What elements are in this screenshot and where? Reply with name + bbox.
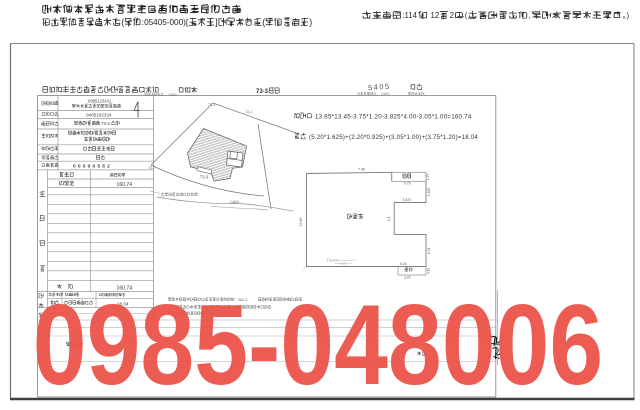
svg-text:1/600: 1/600 [168,93,177,97]
svg-text:(: ( [465,11,468,20]
svg-text::114: :114 [402,11,417,20]
svg-text:1.05: 1.05 [340,262,346,266]
svg-text:1.4: 1.4 [387,217,391,222]
svg-text:13.60: 13.60 [299,218,303,227]
svg-text:12: 12 [431,11,440,20]
svg-text:1.625: 1.625 [427,188,431,197]
svg-text:。): 。) [623,11,630,20]
svg-text:7.45: 7.45 [358,168,365,172]
svg-text:13.65*13.45-3.75*1.20-3.825*4.: 13.65*13.45-3.75*1.20-3.825*4.00-3.05*1.… [315,114,472,121]
svg-text:3.825: 3.825 [403,198,412,202]
svg-text:3.20: 3.20 [404,276,411,280]
svg-text:2: 2 [450,11,454,20]
svg-text:(: ( [262,17,265,27]
svg-text:73-1: 73-1 [245,110,252,114]
svg-text:73-3: 73-3 [101,121,110,126]
svg-text:): ) [309,17,312,27]
svg-text:4.05: 4.05 [427,248,431,255]
svg-text:73-3: 73-3 [200,175,209,180]
svg-text:(: ( [121,17,124,27]
svg-text:5.24: 5.24 [400,262,407,266]
svg-text:,: , [529,11,531,20]
svg-text:5.79: 5.79 [404,181,411,185]
svg-text:0985123241: 0985123241 [88,99,112,104]
svg-text:(5.20*1.625)+(2.20*0.925)+(3.0: (5.20*1.625)+(2.20*0.925)+(3.05*1.00)+(3… [309,134,478,141]
svg-text:73-4: 73-4 [208,103,215,107]
svg-text:73-3: 73-3 [256,89,269,95]
svg-text:]: ] [215,17,217,27]
svg-text:0 0 0 0 0 5 5 2: 0 0 0 0 0 5 5 2 [73,163,110,169]
svg-text:0985-048006: 0985-048006 [33,282,603,409]
svg-text:0405102324: 0405102324 [86,112,112,117]
svg-text:4.50: 4.50 [427,268,431,274]
svg-text:5405: 5405 [368,82,391,93]
svg-text::05405-000)[: :05405-000)[ [142,18,189,27]
svg-text:160.74: 160.74 [117,182,133,188]
svg-text:73-7: 73-7 [148,166,155,170]
svg-text:1.25: 1.25 [426,174,430,180]
